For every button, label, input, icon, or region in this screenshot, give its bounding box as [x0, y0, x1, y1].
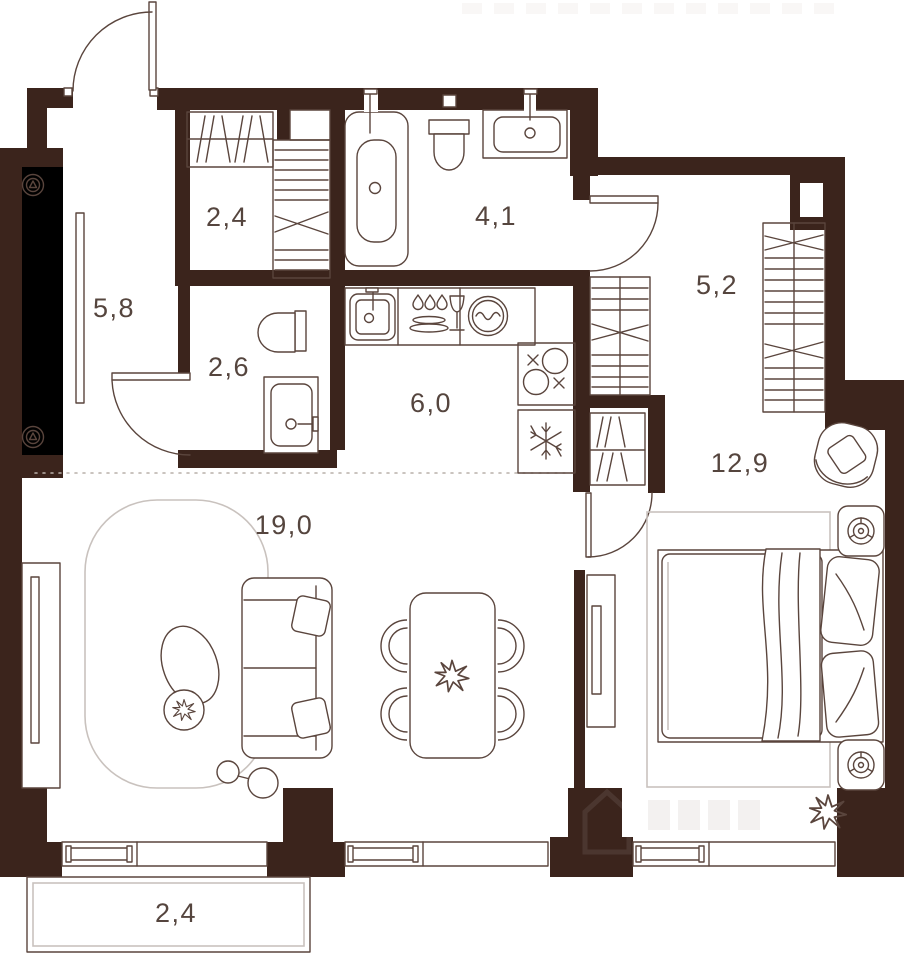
radiator-icon — [76, 213, 84, 403]
room-label-kitchen: 6,0 — [410, 388, 452, 418]
side-table-with-plant — [164, 690, 204, 730]
dining-set — [381, 593, 524, 758]
room-label-closet: 2,4 — [206, 202, 248, 232]
wc-fixtures — [258, 311, 318, 453]
left-wall-bay — [22, 167, 84, 455]
room-label-bathroom: 4,1 — [475, 201, 517, 231]
nightstand-with-lamp — [838, 506, 884, 556]
windows — [27, 842, 835, 952]
sofa-icon — [242, 578, 332, 758]
bedroom-furniture — [587, 418, 884, 829]
closet-furniture — [187, 110, 330, 278]
floor-plan: 5,8 2,4 4,1 2,6 6,0 5,2 19,0 12,9 2,4 — [0, 0, 904, 960]
sink-icon — [264, 377, 318, 453]
pillow-icon — [291, 697, 332, 739]
washing-machine-icon — [469, 297, 508, 336]
hanging-wardrobe-icon — [187, 112, 273, 167]
bathroom-fixtures — [345, 89, 567, 266]
tv-console — [22, 563, 60, 788]
shelves-icon — [590, 277, 650, 395]
snowflake-fridge-icon — [518, 410, 575, 473]
bedroom-window — [633, 842, 835, 866]
pillow-icon — [291, 595, 332, 637]
floor-plan-canvas: 5,8 2,4 4,1 2,6 6,0 5,2 19,0 12,9 2,4 — [0, 0, 904, 960]
kitchen-fixtures — [345, 288, 575, 473]
bed-icon — [658, 549, 883, 742]
corridor-storage — [590, 223, 825, 485]
tv-console — [587, 575, 615, 727]
wc-door — [112, 373, 190, 455]
room-label-balcony: 2,4 — [155, 898, 197, 928]
watermark-strip — [462, 3, 834, 14]
dishes-icon — [410, 295, 464, 332]
room-label-wc: 2,6 — [208, 352, 250, 382]
bathroom-door — [590, 196, 658, 271]
hanging-wardrobe-icon — [590, 413, 645, 485]
living-room-furniture — [22, 500, 524, 798]
tv-icon — [592, 606, 601, 694]
bathtub-icon — [345, 89, 408, 266]
pillow-icon — [820, 650, 879, 738]
room-label-living-room: 19,0 — [255, 510, 314, 540]
living-room-window-right — [345, 842, 548, 866]
stove-icon — [518, 343, 575, 405]
dining-table-icon — [410, 593, 495, 758]
wall-niche — [800, 183, 823, 217]
bedroom-door — [586, 493, 652, 557]
room-label-corridor: 5,2 — [696, 270, 738, 300]
sink-icon — [350, 288, 395, 340]
shelves-icon — [763, 223, 825, 412]
nightstand-with-lamp — [838, 740, 884, 790]
room-label-bedroom: 12,9 — [711, 448, 770, 478]
pillow-icon — [820, 556, 881, 647]
living-room-window-left — [62, 842, 267, 866]
entrance-door — [64, 2, 158, 96]
toilet-icon — [258, 311, 306, 352]
wall-recess — [22, 167, 63, 455]
tv-icon — [31, 577, 39, 743]
room-label-entry-hall: 5,8 — [93, 293, 135, 323]
